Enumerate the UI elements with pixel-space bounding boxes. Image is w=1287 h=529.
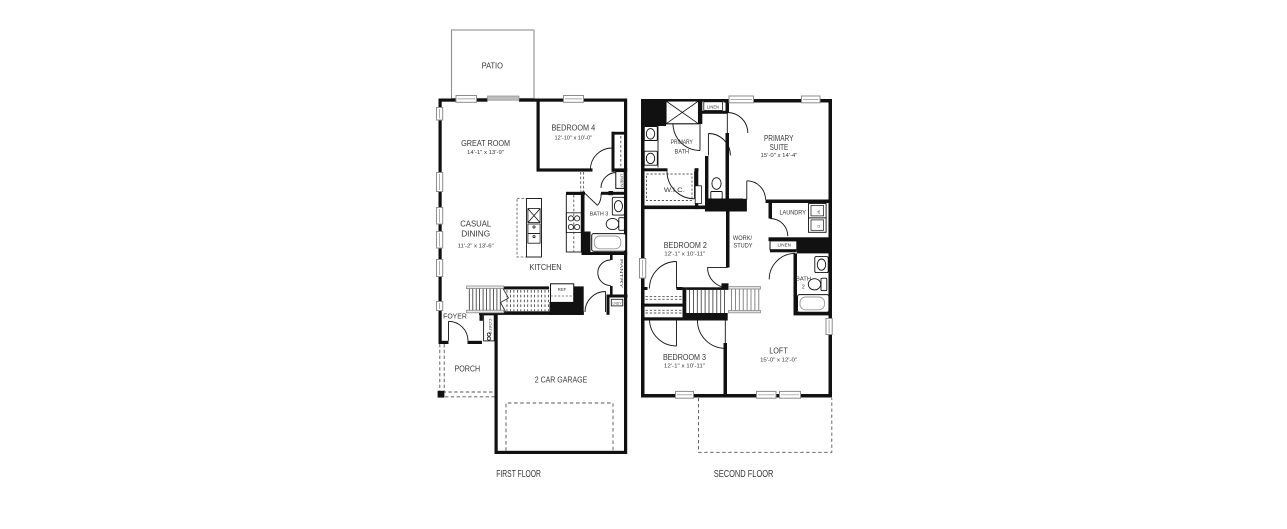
svg-text:REF: REF bbox=[558, 287, 567, 292]
svg-text:BEDROOM 4: BEDROOM 4 bbox=[551, 123, 595, 133]
svg-text:LNDY: LNDY bbox=[613, 302, 623, 306]
svg-text:PRIMARY: PRIMARY bbox=[671, 139, 693, 146]
svg-text:BEDROOM 2: BEDROOM 2 bbox=[664, 241, 708, 250]
svg-text:LINEN: LINEN bbox=[707, 104, 719, 109]
svg-text:FOYER: FOYER bbox=[443, 311, 467, 320]
svg-text:PORCH: PORCH bbox=[455, 365, 481, 374]
svg-text:2 CAR GARAGE: 2 CAR GARAGE bbox=[535, 375, 588, 384]
svg-text:15'-0" x 12'-0": 15'-0" x 12'-0" bbox=[760, 358, 797, 364]
svg-text:BATH 3: BATH 3 bbox=[590, 211, 609, 217]
svg-text:12'-1" x 10'-11": 12'-1" x 10'-11" bbox=[664, 363, 705, 369]
svg-text:PATIO: PATIO bbox=[482, 60, 504, 70]
svg-text:FIRST FLOOR: FIRST FLOOR bbox=[496, 469, 541, 480]
svg-text:SUITE: SUITE bbox=[770, 142, 789, 152]
svg-text:SECOND FLOOR: SECOND FLOOR bbox=[714, 469, 774, 480]
svg-text:STUDY: STUDY bbox=[734, 243, 753, 250]
svg-text:LOFT: LOFT bbox=[769, 346, 788, 355]
svg-text:12'-10" x 10'-0": 12'-10" x 10'-0" bbox=[555, 136, 593, 142]
svg-text:WORK/: WORK/ bbox=[733, 235, 752, 242]
svg-text:12'-1" x 10'-11": 12'-1" x 10'-11" bbox=[664, 252, 705, 258]
svg-text:LAUNDRY: LAUNDRY bbox=[779, 209, 806, 216]
svg-text:BEDROOM 3: BEDROOM 3 bbox=[663, 353, 707, 362]
svg-text:PANTRY: PANTRY bbox=[619, 259, 624, 288]
svg-text:11'-2" x 13'-6": 11'-2" x 13'-6" bbox=[458, 243, 494, 249]
svg-text:W: W bbox=[816, 210, 820, 214]
svg-text:COATS: COATS bbox=[488, 319, 492, 336]
svg-text:GREAT ROOM: GREAT ROOM bbox=[461, 138, 510, 148]
svg-text:LINEN: LINEN bbox=[619, 174, 623, 187]
svg-text:CASUAL: CASUAL bbox=[460, 218, 491, 228]
svg-text:2: 2 bbox=[802, 285, 805, 291]
svg-text:KITCHEN: KITCHEN bbox=[530, 263, 562, 272]
svg-text:BATH: BATH bbox=[675, 148, 689, 155]
svg-text:D: D bbox=[816, 225, 820, 228]
svg-text:DINING: DINING bbox=[461, 228, 490, 238]
svg-text:15'-0" x 14'-4": 15'-0" x 14'-4" bbox=[761, 153, 798, 159]
svg-text:LINEN: LINEN bbox=[777, 243, 791, 248]
svg-text:14'-1" x 13'-9": 14'-1" x 13'-9" bbox=[467, 150, 504, 156]
